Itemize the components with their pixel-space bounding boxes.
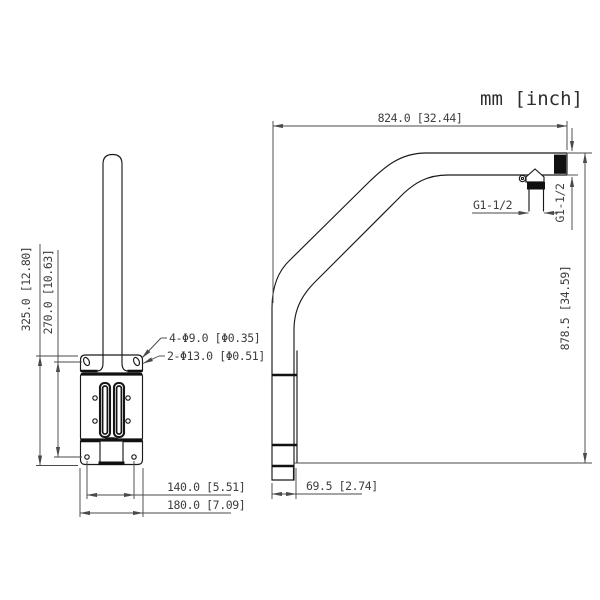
bolt-hole-top-left	[93, 396, 97, 400]
thread-label-tube-end-text: G1-1/2	[553, 183, 567, 222]
arm-tube-outline	[272, 153, 567, 480]
thread-label-adapter-text: G1-1/2	[473, 198, 512, 212]
strap-slot-left-inner	[103, 386, 108, 434]
adapter-set-screw-center	[521, 177, 523, 179]
callout-large-holes-text: 2-Φ13.0 [Φ0.51]	[167, 349, 265, 363]
callout-small-holes-text: 4-Φ9.0 [Φ0.35]	[169, 331, 260, 345]
mount-hole-bottom-left	[85, 455, 89, 459]
adapter-set-screw	[519, 175, 525, 181]
pole-outline	[103, 155, 122, 364]
dim-reach-text: 824.0 [32.44]	[378, 111, 463, 125]
mount-hole-bottom-right	[132, 455, 136, 459]
keyhole-slot-right	[132, 357, 140, 367]
dim-height-text: 878.5 [34.59]	[558, 266, 572, 351]
pole-flare-left	[97, 363, 103, 371]
strap-slot-left	[100, 383, 110, 437]
technical-drawing: mm [inch]	[0, 0, 600, 600]
bottom-flange	[81, 441, 143, 465]
bolt-hole-top-right	[126, 396, 130, 400]
keyhole-slot-left	[82, 357, 90, 367]
dim-overall-height-text: 325.0 [12.80]	[19, 247, 33, 332]
front-view	[81, 155, 143, 466]
bolt-hole-bottom-right	[126, 419, 130, 423]
dim-overall-width-text: 180.0 [7.09]	[167, 498, 245, 512]
tube-bottom-collar	[99, 462, 125, 466]
strap-slot-right-inner	[117, 386, 122, 434]
tube-end-thread	[554, 155, 566, 174]
adapter-thread-band	[527, 182, 545, 190]
dim-base-depth-text: 69.5 [2.74]	[306, 479, 378, 493]
leader-small-holes	[142, 338, 161, 358]
leader-large-holes	[143, 356, 159, 364]
dim-hole-pitch-vertical-text: 270.0 [10.63]	[41, 250, 55, 335]
units-label: mm [inch]	[480, 88, 583, 110]
clamp-plate	[81, 373, 143, 441]
strap-slot-right	[114, 383, 124, 437]
pole-flare-right	[122, 363, 128, 371]
dim-hole-pitch-horizontal-text: 140.0 [5.51]	[167, 480, 245, 494]
side-view	[272, 153, 568, 480]
bolt-hole-bottom-left	[93, 419, 97, 423]
